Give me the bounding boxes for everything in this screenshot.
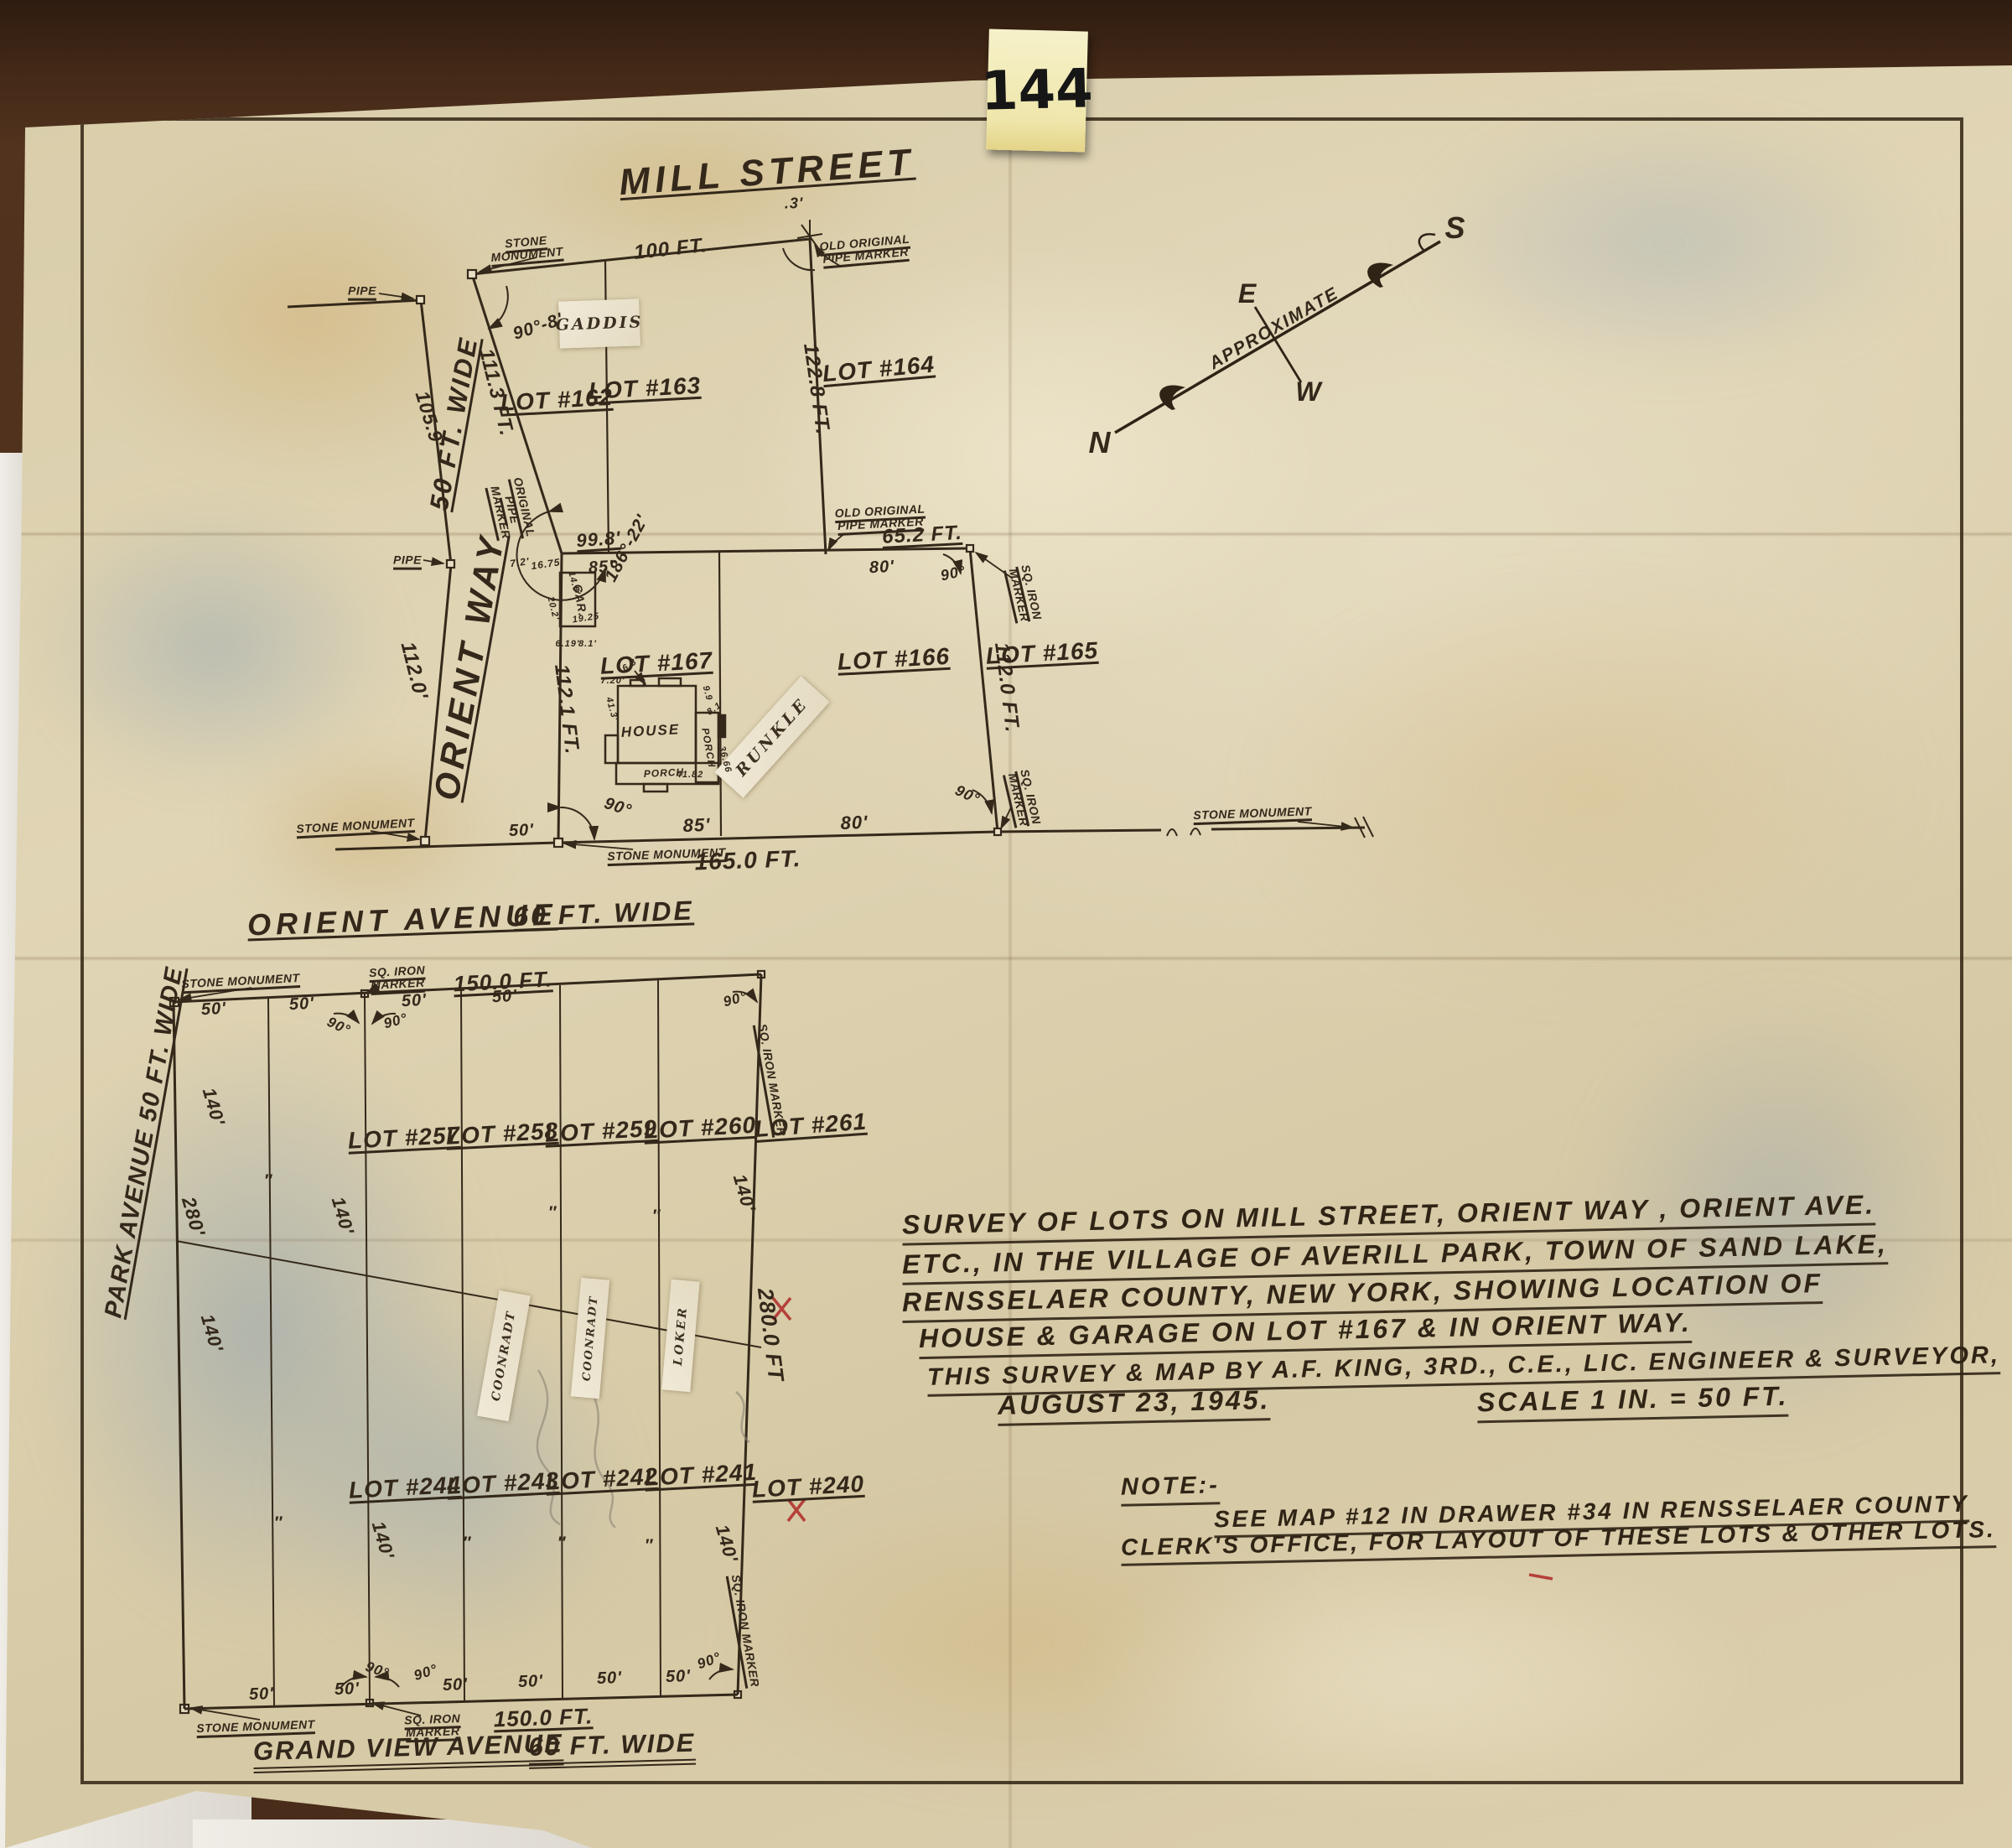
ditto-mark: ″ [274,1515,283,1533]
lot-label-167: LOT #167 [599,648,713,678]
sq-iron-marker-point [967,545,973,552]
sticky-note-tag: 144 [986,29,1088,152]
house-bay-large [659,678,681,686]
house-dim-41-82: 41.82 [677,771,704,781]
dim-lower-50-b2: 50' [334,1680,360,1699]
ditto-mark: ″ [652,1208,661,1226]
house-dim-7-20: 7.20' [600,677,625,687]
lot-label-241: LOT #241 [644,1460,757,1490]
arc-90-at-sw [561,807,594,839]
dim-lower-50-b3: 50' [443,1676,469,1695]
owner-patch-gaddis: GADDIS [558,298,640,348]
sq-iron-marker-point [994,828,1001,835]
dim-lower-50-t1: 50' [200,1000,226,1020]
red-dash-mark [1529,1575,1553,1579]
ditto-mark: ″ [463,1535,472,1553]
dim-lower-50-b6: 50' [666,1668,692,1686]
lot-label-259: LOT #259 [544,1116,657,1146]
ditto-mark: ″ [557,1535,567,1553]
dim-gar-7-2: 7.2' [509,556,530,569]
ditto-mark: ″ [645,1538,654,1555]
owner-name: COONRADT [580,1295,600,1382]
compass-east-label: E [1238,280,1257,309]
dim-bottom-85: 85' [682,815,710,835]
lower-west-line [174,1002,184,1709]
pencil-scribbles [537,1370,749,1528]
stone-monument-point [554,838,563,847]
dim-top-80: 80' [869,558,895,578]
lot-label-242: LOT #242 [545,1464,658,1494]
marker-old-original-pipe-mid: OLD ORIGINAL PIPE MARKER [828,502,931,532]
house-label: HOUSE [620,722,680,740]
photo-of-survey-map: GADDIS RUNKLE COONRADT COONRADT LOKER MI… [0,0,2012,1848]
arc-90-8 [489,286,508,329]
compass-north-label: N [1089,427,1112,459]
house-notch [605,735,618,763]
leader-pipe-top [379,293,413,298]
leader-stone-monument-west [371,831,419,839]
owner-name: GADDIS [555,313,643,335]
dim-bottom-50: 50' [509,822,535,840]
sticky-note-number: 144 [980,58,1093,122]
compass-swash-north [1159,385,1185,410]
owner-name: COONRADT [490,1310,519,1403]
house-step-dark [718,715,725,737]
dim-lower-50-t2: 50' [288,995,314,1015]
lower-divider-1 [268,998,274,1705]
lot-label-257: LOT #257 [347,1123,460,1153]
leader-pipe-mid [423,560,443,563]
dim-lower-bottom-150: 150.0 FT. [493,1705,593,1731]
house-step-bottom [644,784,667,792]
marker-pipe-top: PIPE [348,285,376,298]
dim-lower-50-t3: 50' [401,992,427,1011]
pipe-point [417,296,424,304]
owner-name: LOKER [672,1306,690,1367]
northwest-tie-line [288,300,421,307]
marker-sq-iron-lower-top: SQ. IRON MARKER [359,963,435,992]
title-scale: SCALE 1 IN. = 50 FT. [1477,1381,1789,1424]
lot167-166-divider [719,553,721,836]
pencil-scribble [537,1370,560,1524]
compass-swash-south [1367,262,1393,288]
lower-divider-4 [560,985,563,1700]
title-date: AUGUST 23, 1945. [998,1384,1271,1426]
dim-top-85: 85' [588,558,614,577]
dim-lower-50-t4: 50' [491,988,517,1007]
lot-label-243: LOT #243 [446,1468,559,1498]
marker-sq-iron-lower-bottom: SQ. IRON MARKER [395,1712,471,1739]
ditto-mark: ″ [264,1173,273,1191]
monument-squares [170,270,1001,1713]
lower-divider-2 [365,994,370,1703]
arc-90-lower-se [709,1669,733,1679]
pencil-scribble [587,1383,615,1528]
leader-stone-lower-bl [190,1708,260,1720]
lower-divider-5 [658,980,661,1697]
lot-label-166: LOT #166 [837,644,950,674]
orient-avenue-line-east-extension [998,828,1365,832]
pipe-point [447,560,454,568]
garage-dim-8-1: 8.1' [578,640,597,650]
leader-old-pipe-d [828,533,845,550]
dim-top-99-8: 99.8' [576,528,622,551]
dim-corner-offset: .3' [785,196,803,212]
compass-west-label: W [1295,378,1321,407]
street-label-orient-ave-width: 60 FT. WIDE [513,896,695,931]
lot-label-258: LOT #258 [445,1119,558,1149]
garage-dim-6-19: 6.19' [555,640,579,650]
compass-south-label: S [1444,212,1465,244]
leader-sq-iron-se [1001,807,1011,828]
house-bay-small [630,680,644,686]
marker-pipe-mid: PIPE [393,554,422,567]
lower-divider-3 [461,989,464,1701]
note-heading: NOTE:- [1121,1472,1221,1506]
dim-lower-50-b5: 50' [597,1669,623,1688]
ditto-mark: ″ [548,1205,557,1222]
lot-label-260: LOT #260 [643,1113,756,1143]
lot-label-240: LOT #240 [751,1472,864,1502]
line-break-marks [1167,828,1200,836]
leader-stone-monument-east [1298,822,1353,828]
red-x-mark [788,1499,805,1521]
dim-lower-50-b1: 50' [249,1685,275,1704]
lot-label-244: LOT #244 [348,1472,461,1503]
dim-lower-50-b4: 50' [518,1673,544,1691]
stone-monument-point [468,270,476,278]
street-label-grand-view-width: 60 FT. WIDE [528,1730,696,1769]
stone-monument-point [421,837,429,845]
dim-bottom-80: 80' [840,812,868,833]
lot-label-163: LOT #163 [588,373,701,403]
